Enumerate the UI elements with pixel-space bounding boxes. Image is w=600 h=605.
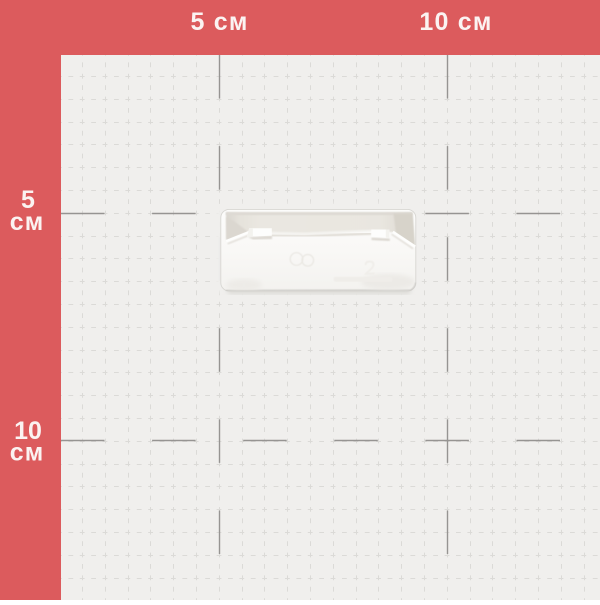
svg-text:см: см xyxy=(10,208,44,236)
svg-text:см: см xyxy=(10,439,44,467)
svg-text:5 см: 5 см xyxy=(190,8,248,36)
svg-text:10 см: 10 см xyxy=(419,8,492,36)
